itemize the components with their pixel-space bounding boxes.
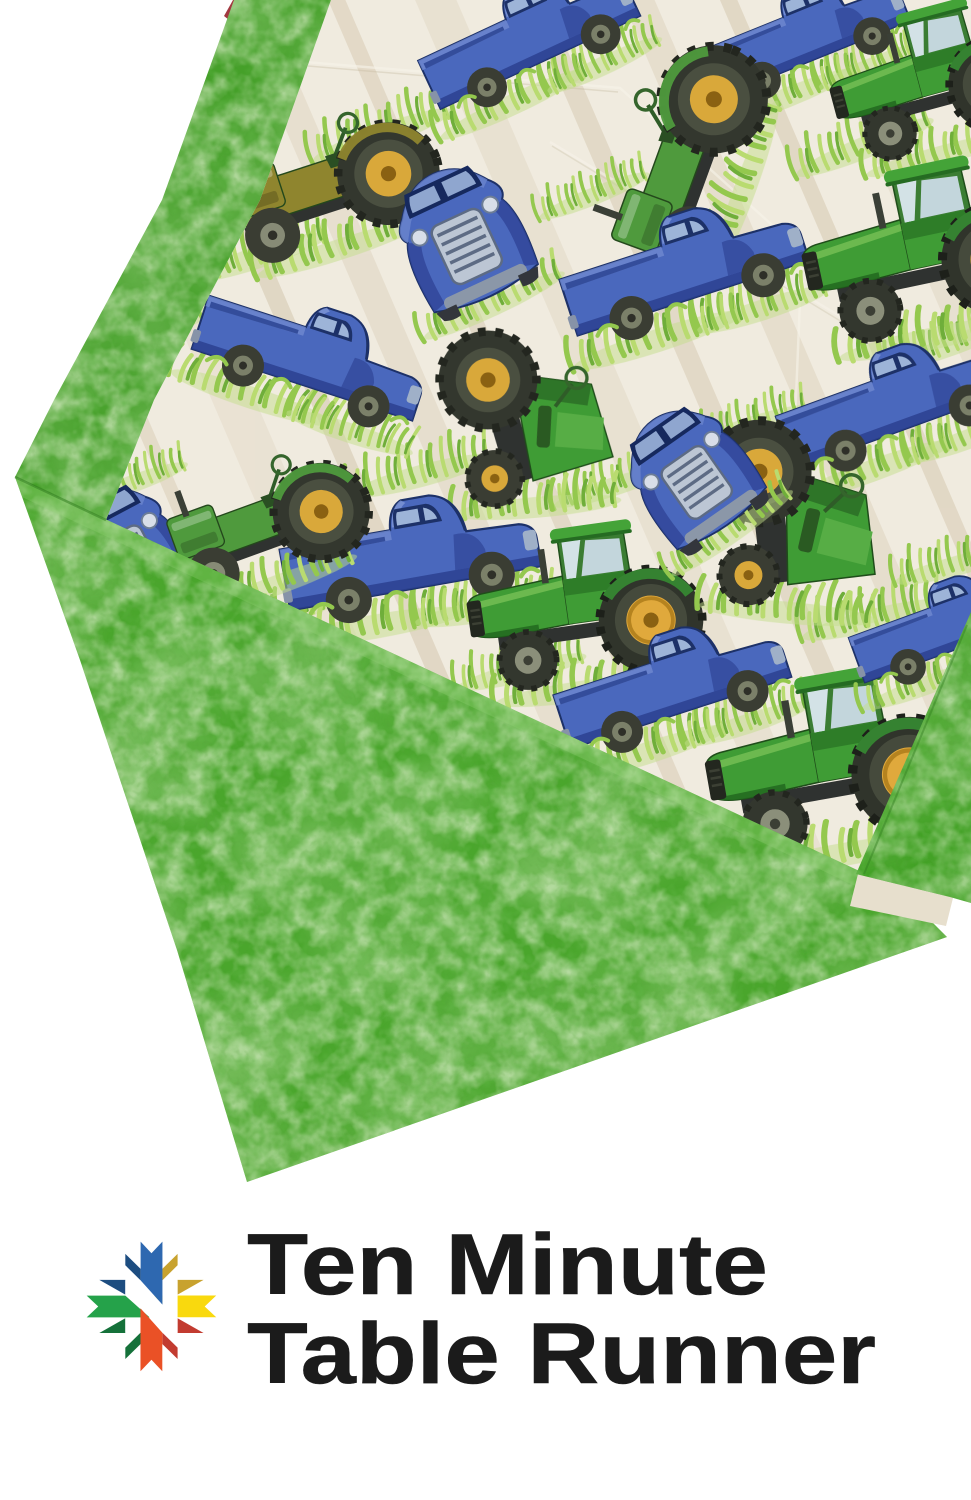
svg-text:Table Runner: Table Runner [247,1306,876,1402]
svg-text:Ten Minute: Ten Minute [247,1217,768,1313]
